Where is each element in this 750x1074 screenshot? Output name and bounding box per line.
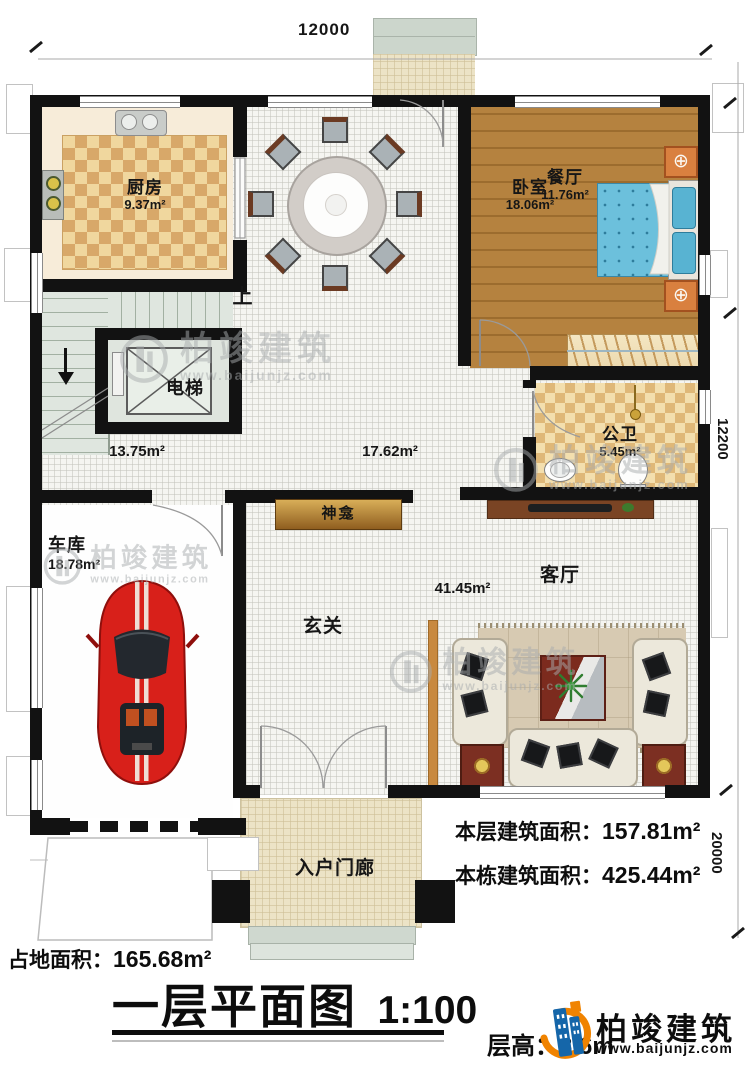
bedroom-label: 卧室 18.06m² [475,178,585,212]
brand-url: www.baijunjz.com [596,1040,733,1056]
plan-title-row: 一层平面图 1:100 [112,968,477,1037]
floorplan-canvas: 12000 12200 20000 厨房 9.37m² 餐厅 11.76m² ⊕… [0,0,750,1074]
window-bedroom-top [515,96,660,108]
building-area-stat: 本栋建筑面积：425.44m² [455,860,700,890]
floor-area-stat: 本层建筑面积：157.81m² [455,816,700,846]
window-dining-top [268,96,372,108]
dimension-right-lower: 20000 [708,832,725,874]
bathroom-label: 公卫 5.45m² [575,425,665,459]
floor-area-label: 本层建筑面积： [455,821,602,844]
floor-area-value: 157.81m² [602,818,700,844]
kitchen-label: 厨房 9.37m² [90,178,200,212]
window-garage-left-lower [31,760,43,810]
garage-label: 车库 18.78m² [48,535,158,572]
foyer-label: 玄关 [288,616,358,638]
plan-title: 一层平面图 [112,980,357,1033]
elevator-label: 电梯 [140,378,230,399]
window-kitchen-top [80,96,180,108]
title-underline-thin [112,1040,444,1042]
open-area-left-label: 13.75m² [92,443,182,460]
building-area-label: 本栋建筑面积： [455,865,602,888]
stairs-up-label: 上 [226,286,260,309]
window-living-bottom [480,786,665,799]
dimension-right-upper: 12200 [714,418,731,460]
title-underline-thick [112,1030,444,1035]
living-label: 客厅 [525,565,595,587]
window-garage-left [31,588,43,708]
building-area-value: 425.44m² [602,862,700,888]
window-bedroom-right [699,255,711,295]
open-area-center-label: 17.62m² [345,443,435,460]
living-area-label: 41.45m² [415,580,510,597]
porch-label: 入户门廊 [270,858,400,880]
dimension-top: 12000 [298,20,350,40]
window-bathroom-right [699,390,711,424]
brand-logo-icon [536,998,594,1066]
window-stairs-left [31,253,43,313]
land-area-label: 占地面积： [8,949,113,972]
plan-scale: 1:100 [377,989,477,1032]
